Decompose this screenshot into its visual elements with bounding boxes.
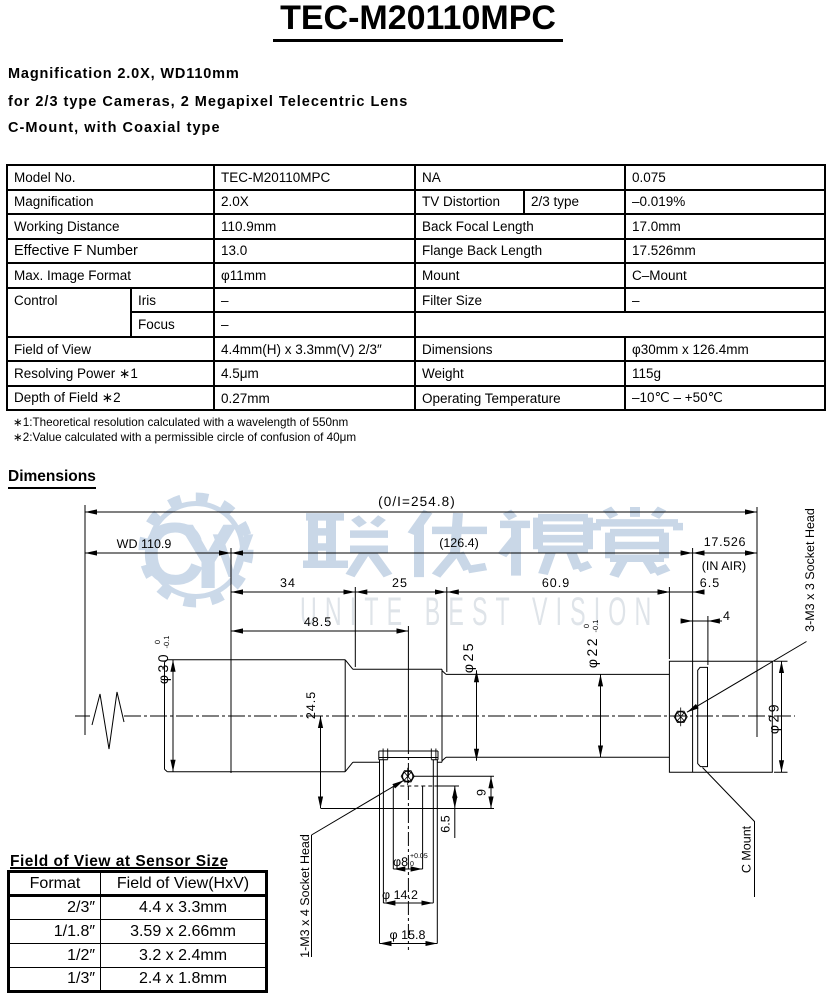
svg-text:C Mount: C Mount: [740, 825, 754, 873]
svg-text:0: 0: [153, 640, 162, 644]
svg-text:1-M3 x 4 Socket Head: 1-M3 x 4 Socket Head: [298, 834, 312, 958]
svg-text:9: 9: [475, 789, 489, 796]
svg-text:48.5: 48.5: [304, 615, 332, 629]
svg-text:4: 4: [723, 609, 731, 623]
svg-text:φ29: φ29: [766, 702, 782, 734]
svg-text:6.5: 6.5: [700, 576, 720, 590]
svg-text:(126.4): (126.4): [439, 536, 479, 550]
svg-text:(0/I=254.8): (0/I=254.8): [378, 494, 456, 509]
svg-text:0: 0: [582, 624, 591, 628]
svg-text:UNITE BEST VISION: UNITE BEST VISION: [300, 590, 659, 634]
svg-text:17.526: 17.526: [704, 535, 746, 549]
svg-text:6.5: 6.5: [439, 815, 453, 832]
svg-text:φ 14.2: φ 14.2: [382, 888, 418, 902]
svg-text:60.9: 60.9: [542, 576, 570, 590]
svg-text:φ22: φ22: [584, 636, 600, 668]
svg-text:3-M3 x 3 Socket Head: 3-M3 x 3 Socket Head: [803, 508, 817, 632]
svg-text:φ30: φ30: [155, 652, 171, 684]
svg-text:φ8: φ8: [393, 855, 408, 869]
svg-text:0: 0: [410, 861, 414, 868]
svg-text:V: V: [212, 522, 253, 591]
svg-text:φ 15.8: φ 15.8: [390, 928, 426, 942]
svg-text:34: 34: [280, 576, 296, 590]
svg-text:(IN AIR): (IN AIR): [702, 559, 746, 573]
svg-text:-0.1: -0.1: [591, 620, 600, 633]
svg-text:24.5: 24.5: [304, 691, 318, 719]
svg-text:+0.05: +0.05: [410, 853, 428, 860]
svg-text:-0.1: -0.1: [162, 636, 171, 649]
svg-text:25: 25: [392, 576, 408, 590]
svg-text:φ25: φ25: [460, 641, 476, 673]
svg-text:WD 110.9: WD 110.9: [117, 537, 172, 551]
